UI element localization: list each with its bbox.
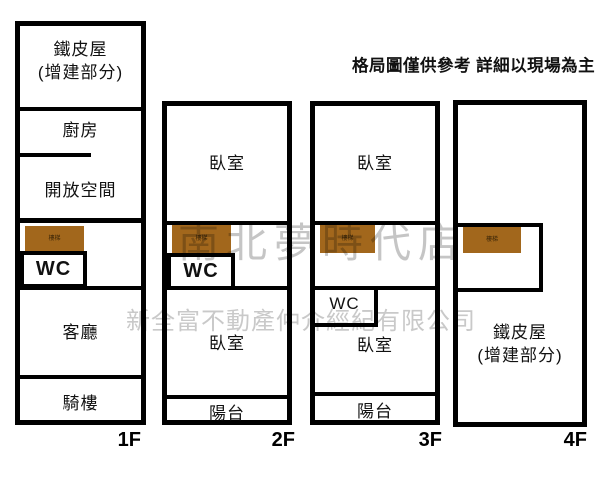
stairs-box-3f: 樓梯 — [320, 225, 375, 253]
stairs-label: 樓梯 — [48, 236, 60, 242]
wall-stairwell-side — [539, 223, 543, 292]
wc-label-3f: WC — [315, 294, 374, 313]
room-label-bedroom-top-2f: 臥室 — [167, 154, 287, 173]
wall-stairwell-bottom — [458, 288, 543, 292]
stairs-label: 樓梯 — [341, 236, 353, 242]
wall — [167, 395, 287, 399]
tin-house-line2: (增建部分) — [20, 61, 141, 84]
wc-room-1f: WC — [20, 251, 87, 288]
stairs-label: 樓梯 — [195, 236, 207, 242]
wc-label: WC — [36, 258, 71, 281]
stairs-box-1f: 樓梯 — [25, 226, 84, 252]
floor-plan-3f: 臥室 樓梯 WC 臥室 陽台 — [310, 101, 440, 425]
stairs-box-4f: 樓梯 — [463, 227, 521, 253]
floor-plan-1f: 鐵皮屋 (增建部分) 廚房 開放空間 樓梯 WC 客廳 騎樓 — [15, 21, 146, 425]
wall — [167, 286, 287, 290]
wall-partial — [20, 153, 91, 157]
room-label-living: 客廳 — [20, 323, 141, 342]
wc-label: WC — [183, 260, 218, 283]
disclaimer-text: 格局圖僅供參考 詳細以現場為主 — [352, 52, 602, 76]
wall — [20, 375, 141, 379]
wall — [315, 392, 435, 396]
wall — [20, 286, 141, 290]
tin-house-line2: (增建部分) — [458, 344, 582, 367]
wc-room-2f: WC — [167, 253, 235, 290]
room-label-tin-house-1f: 鐵皮屋 (增建部分) — [20, 38, 141, 84]
room-label-balcony-3f: 陽台 — [315, 402, 435, 421]
stairs-box-2f: 樓梯 — [172, 225, 231, 253]
floor-plan-4f: 樓梯 鐵皮屋 (增建部分) — [453, 100, 587, 427]
wall — [20, 218, 141, 223]
floor-label-1f: 1F — [15, 429, 141, 449]
room-label-kitchen: 廚房 — [20, 121, 141, 140]
floor-label-2f: 2F — [162, 429, 295, 449]
wall — [20, 107, 141, 111]
floor-plan-2f: 臥室 樓梯 WC 臥室 陽台 — [162, 101, 292, 425]
room-label-arcade: 騎樓 — [20, 394, 141, 413]
room-label-open-space: 開放空間 — [20, 181, 141, 200]
room-label-bedroom-top-3f: 臥室 — [315, 154, 435, 173]
floor-plan-canvas: 格局圖僅供參考 詳細以現場為主 鐵皮屋 (增建部分) 廚房 開放空間 樓梯 WC… — [0, 0, 608, 480]
floor-label-3f: 3F — [310, 429, 442, 449]
tin-house-line1: 鐵皮屋 — [458, 321, 582, 344]
room-label-balcony-2f: 陽台 — [167, 404, 287, 423]
floor-label-4f: 4F — [453, 429, 587, 449]
room-label-bedroom-bottom-2f: 臥室 — [167, 334, 287, 353]
room-label-tin-house-4f: 鐵皮屋 (增建部分) — [458, 321, 582, 367]
wall-wc-divider — [374, 286, 378, 327]
tin-house-line1: 鐵皮屋 — [20, 38, 141, 61]
stairs-label: 樓梯 — [486, 237, 498, 243]
room-label-bedroom-bottom-3f: 臥室 — [315, 336, 435, 355]
wall-partial — [315, 323, 378, 327]
